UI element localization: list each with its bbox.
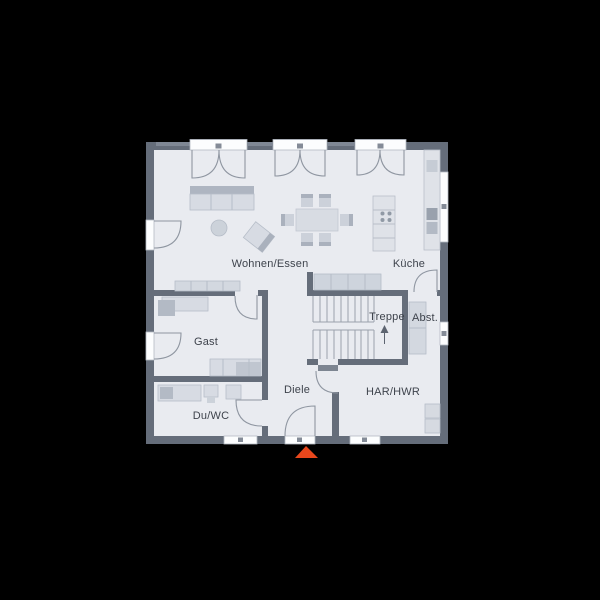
floorplan-canvas: Wohnen/Essen Küche Gast Treppe Abst. Die… <box>0 0 600 600</box>
kitchen-appliance <box>427 222 438 234</box>
duwc-fixture <box>226 385 241 399</box>
wall-hall-left-lower <box>262 426 268 436</box>
room-label-wohnen-essen: Wohnen/Essen <box>232 258 309 270</box>
terrace-door-opening-living <box>146 220 154 250</box>
room-label-treppe: Treppe <box>369 311 405 323</box>
wall-gast-duwc <box>154 376 262 382</box>
entrance-arrow-icon <box>295 446 318 458</box>
coffee-table <box>211 220 227 236</box>
har-appliance-2 <box>425 419 440 433</box>
har-appliance-1 <box>425 404 440 418</box>
guest-bed-head <box>158 300 175 316</box>
wall-outer-left <box>146 142 154 444</box>
kitchen-oven <box>427 208 438 220</box>
wall-diele-har <box>332 392 339 436</box>
diele-door-leaf <box>318 365 338 371</box>
wall-stair-top <box>307 290 408 296</box>
wall-stair-bottom-b <box>338 359 408 365</box>
room-label-diele: Diele <box>284 384 310 396</box>
duwc-toilet-tank <box>204 385 218 397</box>
sofa-seat <box>190 194 254 210</box>
room-label-kueche: Küche <box>393 258 425 270</box>
duwc-sink <box>160 387 173 399</box>
wall-abst-left <box>402 296 408 359</box>
room-label-har-hwr: HAR/HWR <box>366 386 420 398</box>
room-label-gast: Gast <box>194 336 218 348</box>
kitchen-sink <box>427 160 438 172</box>
room-label-du-wc: Du/WC <box>193 410 229 422</box>
terrace-door-opening-guest <box>146 332 154 360</box>
room-label-abst: Abst. <box>412 312 438 324</box>
wall-hall-left <box>262 295 268 400</box>
floorplan-drawing <box>0 0 600 600</box>
wall-stair-bottom-a <box>307 359 318 365</box>
dining-table <box>296 209 338 231</box>
duwc-toilet-bowl <box>207 397 215 403</box>
sofa-back <box>190 186 254 194</box>
